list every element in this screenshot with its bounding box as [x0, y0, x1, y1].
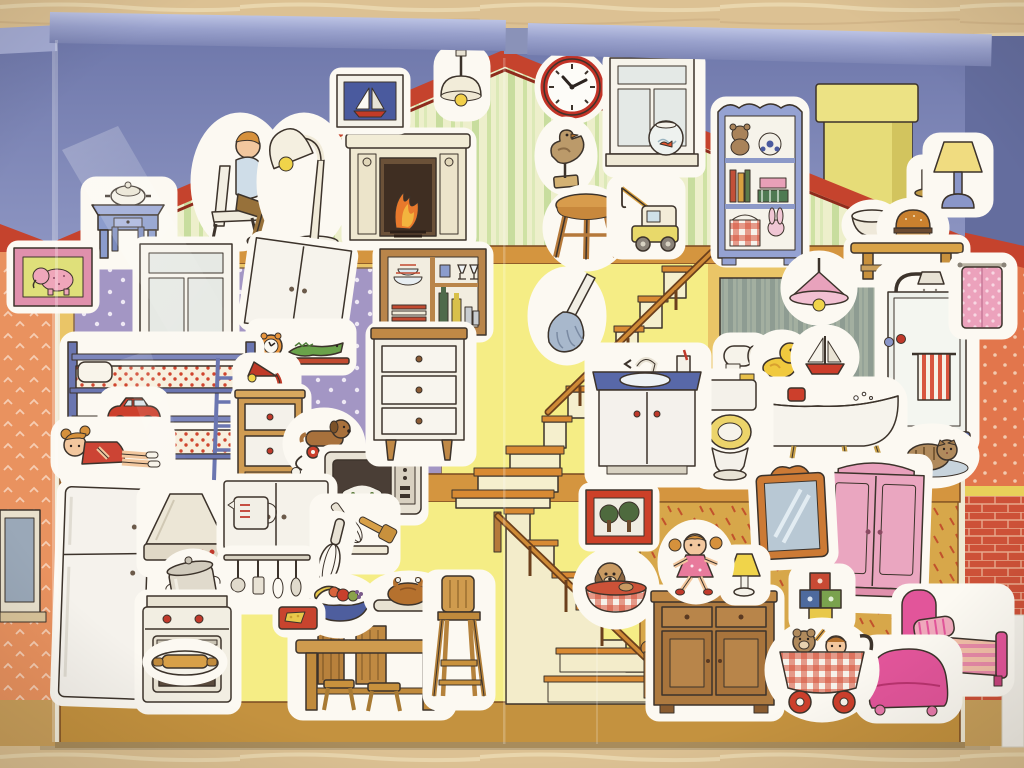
- vignette: [0, 0, 1024, 768]
- photo-of-dollhouse-board: [0, 0, 1024, 768]
